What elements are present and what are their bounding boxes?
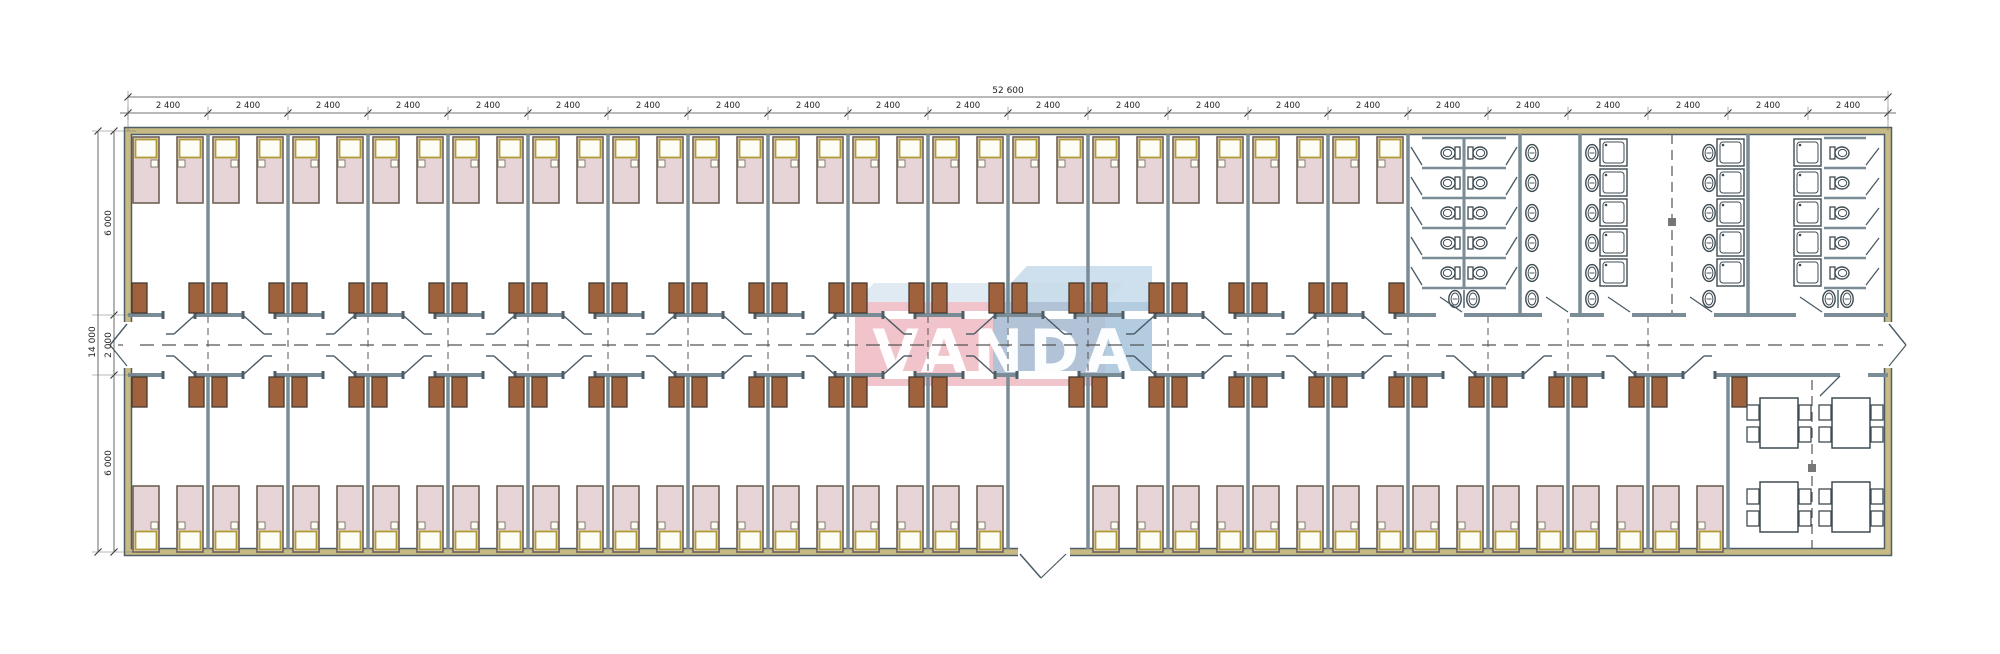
wash-basin <box>1526 291 1538 308</box>
bed-pillow <box>740 140 761 158</box>
bed <box>1617 486 1643 552</box>
bed-pillow <box>1176 532 1197 550</box>
toilet-bowl-inner <box>1838 179 1846 186</box>
bed <box>977 486 1003 552</box>
blanket-fold <box>1431 522 1438 529</box>
shower-tray <box>1794 229 1821 256</box>
bed <box>1297 137 1323 203</box>
bed-pillow <box>660 532 681 550</box>
shower-tray <box>1717 259 1744 286</box>
wardrobe <box>989 283 1004 313</box>
wardrobe <box>589 377 604 407</box>
blanket-fold <box>391 522 398 529</box>
shower-drain <box>1722 264 1725 267</box>
wardrobe <box>909 283 924 313</box>
bed-pillow <box>1220 140 1241 158</box>
blanket-fold <box>551 160 558 167</box>
blanket-fold <box>1351 160 1358 167</box>
blanket-fold <box>898 160 905 167</box>
top-segment-dimension: 2 400 <box>556 101 580 111</box>
wardrobe <box>1012 283 1027 313</box>
bed <box>497 137 523 203</box>
top-total-dimension: 52 600 <box>992 86 1024 96</box>
wash-basin <box>1586 235 1598 252</box>
blanket-fold <box>418 522 425 529</box>
shower-drain <box>1722 234 1725 237</box>
chair <box>1819 489 1831 504</box>
wardrobe <box>452 283 467 313</box>
wardrobe <box>589 283 604 313</box>
shower-tray <box>1717 169 1744 196</box>
blanket-fold <box>231 160 238 167</box>
door-jamb <box>162 371 165 379</box>
bed-pillow <box>260 140 281 158</box>
shower-drain <box>1605 234 1608 237</box>
wardrobe <box>772 283 787 313</box>
table-top <box>1832 482 1870 532</box>
bed-pillow <box>180 532 201 550</box>
stall-door-leaf <box>1411 267 1422 285</box>
wash-basin <box>1586 175 1598 192</box>
dining-table <box>1747 398 1811 448</box>
shower-tray <box>1794 199 1821 226</box>
wash-basin <box>1526 145 1538 162</box>
bed-pillow <box>1380 532 1401 550</box>
stall-door-leaf <box>1411 177 1422 195</box>
wardrobe <box>532 283 547 313</box>
door-jamb <box>802 371 805 379</box>
bed-pillow <box>1096 140 1117 158</box>
door-jamb <box>722 371 725 379</box>
chair <box>1871 427 1883 442</box>
top-segment-dimension: 2 400 <box>1676 101 1700 111</box>
shower-drain <box>1605 144 1608 147</box>
bed-pillow <box>616 532 637 550</box>
shower-tray <box>1794 139 1821 166</box>
top-segment-dimension: 2 400 <box>1436 101 1460 111</box>
blanket-fold <box>978 160 985 167</box>
wardrobe <box>669 283 684 313</box>
door-jamb <box>1682 371 1685 379</box>
top-segment-dimension: 2 400 <box>1596 101 1620 111</box>
chair <box>1799 405 1811 420</box>
top-segment-dimension: 2 400 <box>1836 101 1860 111</box>
chair <box>1747 489 1759 504</box>
bed-pillow <box>1016 140 1037 158</box>
toilet-bowl-inner <box>1443 209 1451 216</box>
wardrobe <box>909 377 924 407</box>
wardrobe <box>509 377 524 407</box>
left-dimension-room-bottom: 6 000 <box>104 450 114 476</box>
bed <box>1377 137 1403 203</box>
toilet <box>1441 267 1460 279</box>
bed <box>533 486 559 552</box>
bed <box>453 486 479 552</box>
bed <box>417 486 443 552</box>
shower-drain <box>1605 204 1608 207</box>
wardrobe <box>692 377 707 407</box>
shower-tray <box>1600 259 1627 286</box>
bed-pillow <box>420 140 441 158</box>
blanket-fold <box>151 522 158 529</box>
blanket-fold <box>1191 160 1198 167</box>
bed-pillow <box>216 140 237 158</box>
blanket-fold <box>391 160 398 167</box>
bed-pillow <box>820 532 841 550</box>
toilet-bowl-inner <box>1443 239 1451 246</box>
shower-tray <box>1600 199 1627 226</box>
wardrobe <box>1389 283 1404 313</box>
bed <box>897 137 923 203</box>
bed-pillow <box>1096 532 1117 550</box>
shower-tray <box>1600 229 1627 256</box>
bed <box>1217 486 1243 552</box>
bed-pillow <box>1300 532 1321 550</box>
bed-pillow <box>900 140 921 158</box>
toilet <box>1830 147 1849 159</box>
chair <box>1747 427 1759 442</box>
chair <box>1871 489 1883 504</box>
bed <box>853 137 879 203</box>
toilet <box>1441 177 1460 189</box>
chair <box>1747 511 1759 526</box>
door-jamb <box>562 371 565 379</box>
bed <box>1253 486 1279 552</box>
bed-pillow <box>1576 532 1597 550</box>
bed <box>257 486 283 552</box>
bed <box>373 486 399 552</box>
wardrobe <box>372 377 387 407</box>
door-jamb <box>1202 311 1205 319</box>
chair <box>1819 511 1831 526</box>
dining-table <box>1819 398 1883 448</box>
blanket-fold <box>1031 160 1038 167</box>
bed <box>773 137 799 203</box>
stall-door-leaf <box>1506 207 1517 225</box>
blanket-fold <box>1218 160 1225 167</box>
bed <box>177 486 203 552</box>
bed <box>257 137 283 203</box>
wardrobe <box>1332 377 1347 407</box>
bed <box>1573 486 1599 552</box>
bed-pillow <box>980 140 1001 158</box>
wardrobe <box>189 377 204 407</box>
blanket-fold <box>1698 522 1705 529</box>
bed <box>177 137 203 203</box>
blanket-fold <box>1511 522 1518 529</box>
stall-door-leaf <box>1506 147 1517 165</box>
stall-door-leaf <box>1866 268 1879 285</box>
wash-basin <box>1703 175 1715 192</box>
door-jamb <box>162 311 165 319</box>
top-segment-dimension: 2 400 <box>476 101 500 111</box>
bed <box>213 137 239 203</box>
blanket-fold <box>631 160 638 167</box>
top-segment-dimension: 2 400 <box>156 101 180 111</box>
shower-drain <box>1722 204 1725 207</box>
wardrobe <box>1229 377 1244 407</box>
door-jamb <box>482 311 485 319</box>
door-jamb <box>402 371 405 379</box>
shower-drain <box>1799 204 1802 207</box>
bed-pillow <box>820 140 841 158</box>
wardrobe <box>932 283 947 313</box>
bed-pillow <box>1220 532 1241 550</box>
shower-drain <box>1799 144 1802 147</box>
door-jamb <box>1362 371 1365 379</box>
wash-basin <box>1703 205 1715 222</box>
floor-plan-page: VANDA 2 4002 4002 4002 4002 4002 4002 40… <box>0 0 2000 654</box>
shower-tray <box>1794 259 1821 286</box>
bed-pillow <box>1176 140 1197 158</box>
blanket-fold <box>578 522 585 529</box>
stall-door-leaf <box>1411 237 1422 255</box>
top-segment-dimension: 2 400 <box>1356 101 1380 111</box>
shower-tray <box>1794 169 1821 196</box>
stall-door-leaf <box>1506 267 1517 285</box>
table-top <box>1760 398 1798 448</box>
top-segment-dimension: 2 400 <box>396 101 420 111</box>
blanket-fold <box>1111 160 1118 167</box>
bed-pillow <box>660 140 681 158</box>
wardrobe <box>269 377 284 407</box>
bed-pillow <box>1656 532 1677 550</box>
blanket-fold <box>258 522 265 529</box>
stall-door-leaf <box>1506 177 1517 195</box>
bed <box>657 486 683 552</box>
toilet-bowl-inner <box>1443 269 1451 276</box>
top-segment-dimension: 2 400 <box>716 101 740 111</box>
stall-door-leaf <box>1866 238 1879 255</box>
left-total-dimension: 14 000 <box>88 326 98 358</box>
bed-pillow <box>776 532 797 550</box>
bed <box>817 137 843 203</box>
shower-tray <box>1600 139 1627 166</box>
bed <box>693 137 719 203</box>
dining-table <box>1747 482 1811 532</box>
door-jamb <box>962 311 965 319</box>
door-jamb <box>962 371 965 379</box>
bed-pillow <box>1416 532 1437 550</box>
toilet-tank <box>1455 207 1460 219</box>
wardrobe <box>692 283 707 313</box>
toilet-tank <box>1468 267 1473 279</box>
blanket-fold <box>1138 160 1145 167</box>
bed-pillow <box>536 532 557 550</box>
left-dimension-room-top: 6 000 <box>104 210 114 236</box>
door-opening <box>1684 371 1714 379</box>
blanket-fold <box>231 522 238 529</box>
wardrobe <box>1412 377 1427 407</box>
door-jamb <box>322 371 325 379</box>
bed <box>657 137 683 203</box>
bed-pillow <box>456 532 477 550</box>
blanket-fold <box>978 522 985 529</box>
bed <box>133 486 159 552</box>
table-top <box>1760 482 1798 532</box>
door-jamb <box>242 371 245 379</box>
wardrobe <box>1732 377 1747 407</box>
bed-pillow <box>376 532 397 550</box>
wardrobe <box>1549 377 1564 407</box>
door-jamb <box>1282 311 1285 319</box>
bed <box>533 137 559 203</box>
door-jamb <box>802 311 805 319</box>
toilet <box>1468 207 1487 219</box>
wardrobe <box>509 283 524 313</box>
toilet <box>1468 267 1487 279</box>
bed <box>1377 486 1403 552</box>
blanket-fold <box>311 160 318 167</box>
wardrobe <box>1572 377 1587 407</box>
bed-pillow <box>1496 532 1517 550</box>
blanket-fold <box>1378 522 1385 529</box>
wardrobe <box>829 377 844 407</box>
door-jamb <box>1042 311 1045 319</box>
toilet-tank <box>1468 147 1473 159</box>
top-segment-dimension: 2 400 <box>1276 101 1300 111</box>
bed <box>453 137 479 203</box>
toilet-bowl-inner <box>1476 239 1484 246</box>
door-opening <box>1686 311 1714 319</box>
wardrobe <box>1309 377 1324 407</box>
top-segment-dimension: 2 400 <box>796 101 820 111</box>
toilet-tank <box>1830 237 1835 249</box>
blanket-fold <box>338 160 345 167</box>
blanket-fold <box>418 160 425 167</box>
shower-drain <box>1799 234 1802 237</box>
blanket-fold <box>1378 160 1385 167</box>
blanket-fold <box>1191 522 1198 529</box>
top-segment-dimension: 2 400 <box>956 101 980 111</box>
chair <box>1819 405 1831 420</box>
wardrobe <box>1332 283 1347 313</box>
top-segment-dimension: 2 400 <box>1036 101 1060 111</box>
bed <box>577 137 603 203</box>
toilet-tank <box>1468 177 1473 189</box>
blanket-fold <box>1618 522 1625 529</box>
left-dimension-corridor: 2 000 <box>104 332 114 358</box>
stall-door-leaf <box>1866 208 1879 225</box>
blanket-fold <box>898 522 905 529</box>
bed-pillow <box>696 532 717 550</box>
bed <box>1013 137 1039 203</box>
blanket-fold <box>151 160 158 167</box>
blanket-fold <box>1538 522 1545 529</box>
bed <box>817 486 843 552</box>
bed <box>737 137 763 203</box>
blanket-fold <box>1058 160 1065 167</box>
blanket-fold <box>1271 522 1278 529</box>
bed <box>417 137 443 203</box>
blanket-fold <box>498 522 505 529</box>
blanket-fold <box>551 522 558 529</box>
door-jamb <box>1122 311 1125 319</box>
blanket-fold <box>1671 522 1678 529</box>
bed-pillow <box>980 532 1001 550</box>
chair <box>1799 427 1811 442</box>
top-segment-dimension: 2 400 <box>636 101 660 111</box>
wash-basin <box>1526 265 1538 282</box>
stall-door-leaf <box>1866 148 1879 165</box>
door-jamb <box>562 311 565 319</box>
bed-pillow <box>136 532 157 550</box>
door-jamb <box>882 371 885 379</box>
wash-basin <box>1823 291 1835 308</box>
wardrobe <box>372 283 387 313</box>
wardrobe <box>189 283 204 313</box>
wash-basin <box>1586 265 1598 282</box>
door-jamb <box>1442 371 1445 379</box>
wardrobe <box>852 283 867 313</box>
wardrobe <box>1172 283 1187 313</box>
wash-basin <box>1526 205 1538 222</box>
corridor-east-exit-opening <box>1883 322 1893 368</box>
toilet-bowl-inner <box>1838 149 1846 156</box>
toilet <box>1830 207 1849 219</box>
blanket-fold <box>791 522 798 529</box>
wash-basin <box>1467 291 1479 308</box>
wardrobe <box>429 377 444 407</box>
toilet-bowl-inner <box>1838 209 1846 216</box>
toilet-tank <box>1455 237 1460 249</box>
blanket-fold <box>951 160 958 167</box>
bed-pillow <box>1140 140 1161 158</box>
bed-pillow <box>500 140 521 158</box>
wardrobe <box>932 377 947 407</box>
bed-pillow <box>1336 140 1357 158</box>
wash-basin <box>1526 175 1538 192</box>
bed-pillow <box>136 140 157 158</box>
bed-pillow <box>376 140 397 158</box>
bed-pillow <box>1256 140 1277 158</box>
wash-basin <box>1586 145 1598 162</box>
bed-pillow <box>180 140 201 158</box>
wash-basin <box>1526 235 1538 252</box>
top-segment-dimension: 2 400 <box>1196 101 1220 111</box>
blanket-fold <box>1298 522 1305 529</box>
door-jamb <box>322 311 325 319</box>
blanket-fold <box>871 522 878 529</box>
shower-tray <box>1717 229 1744 256</box>
blanket-fold <box>1271 160 1278 167</box>
bed <box>1697 486 1723 552</box>
toilet-tank <box>1830 267 1835 279</box>
shower-drain <box>1799 264 1802 267</box>
shower-drain <box>1605 264 1608 267</box>
entrance-opening <box>1018 546 1070 558</box>
toilet-tank <box>1455 267 1460 279</box>
door-leaf <box>1800 297 1822 312</box>
blanket-fold <box>631 522 638 529</box>
bed-pillow <box>340 532 361 550</box>
blanket-fold <box>791 160 798 167</box>
dining-table <box>1819 482 1883 532</box>
floor-plan-drawing: VANDA 2 4002 4002 4002 4002 4002 4002 40… <box>0 0 2000 654</box>
blanket-fold <box>1138 522 1145 529</box>
bed <box>613 137 639 203</box>
bed-pillow <box>1380 140 1401 158</box>
wardrobe <box>452 377 467 407</box>
bed-pillow <box>616 140 637 158</box>
bed <box>1173 137 1199 203</box>
blanket-fold <box>578 160 585 167</box>
wardrobe <box>292 377 307 407</box>
blanket-fold <box>658 160 665 167</box>
bed-pillow <box>420 532 441 550</box>
bed-pillow <box>1700 532 1721 550</box>
top-segment-dimension: 2 400 <box>876 101 900 111</box>
